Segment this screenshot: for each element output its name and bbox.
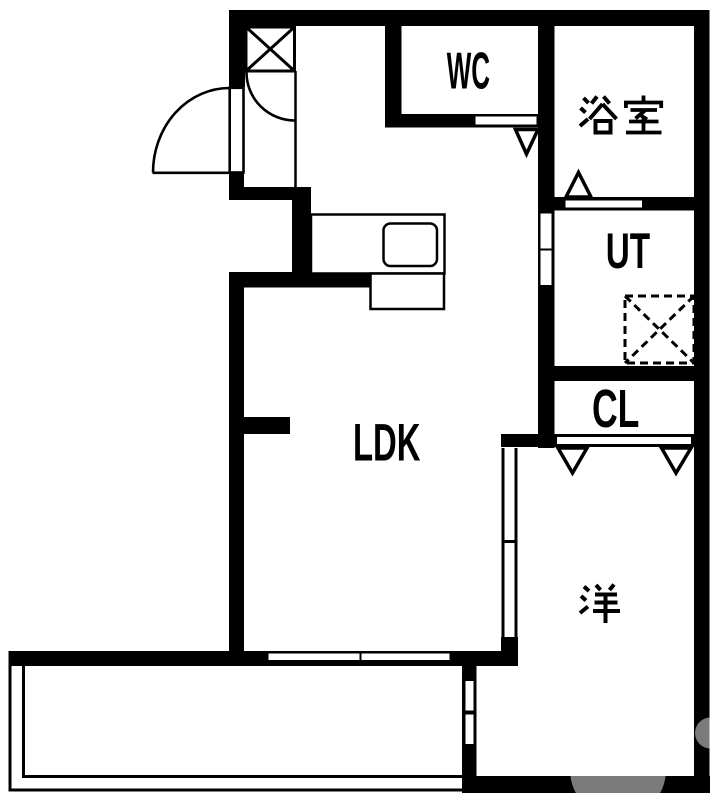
svg-text:WC: WC bbox=[447, 42, 490, 100]
svg-text:LDK: LDK bbox=[353, 414, 421, 473]
svg-text:CL: CL bbox=[592, 379, 640, 439]
svg-text:UT: UT bbox=[606, 223, 650, 278]
